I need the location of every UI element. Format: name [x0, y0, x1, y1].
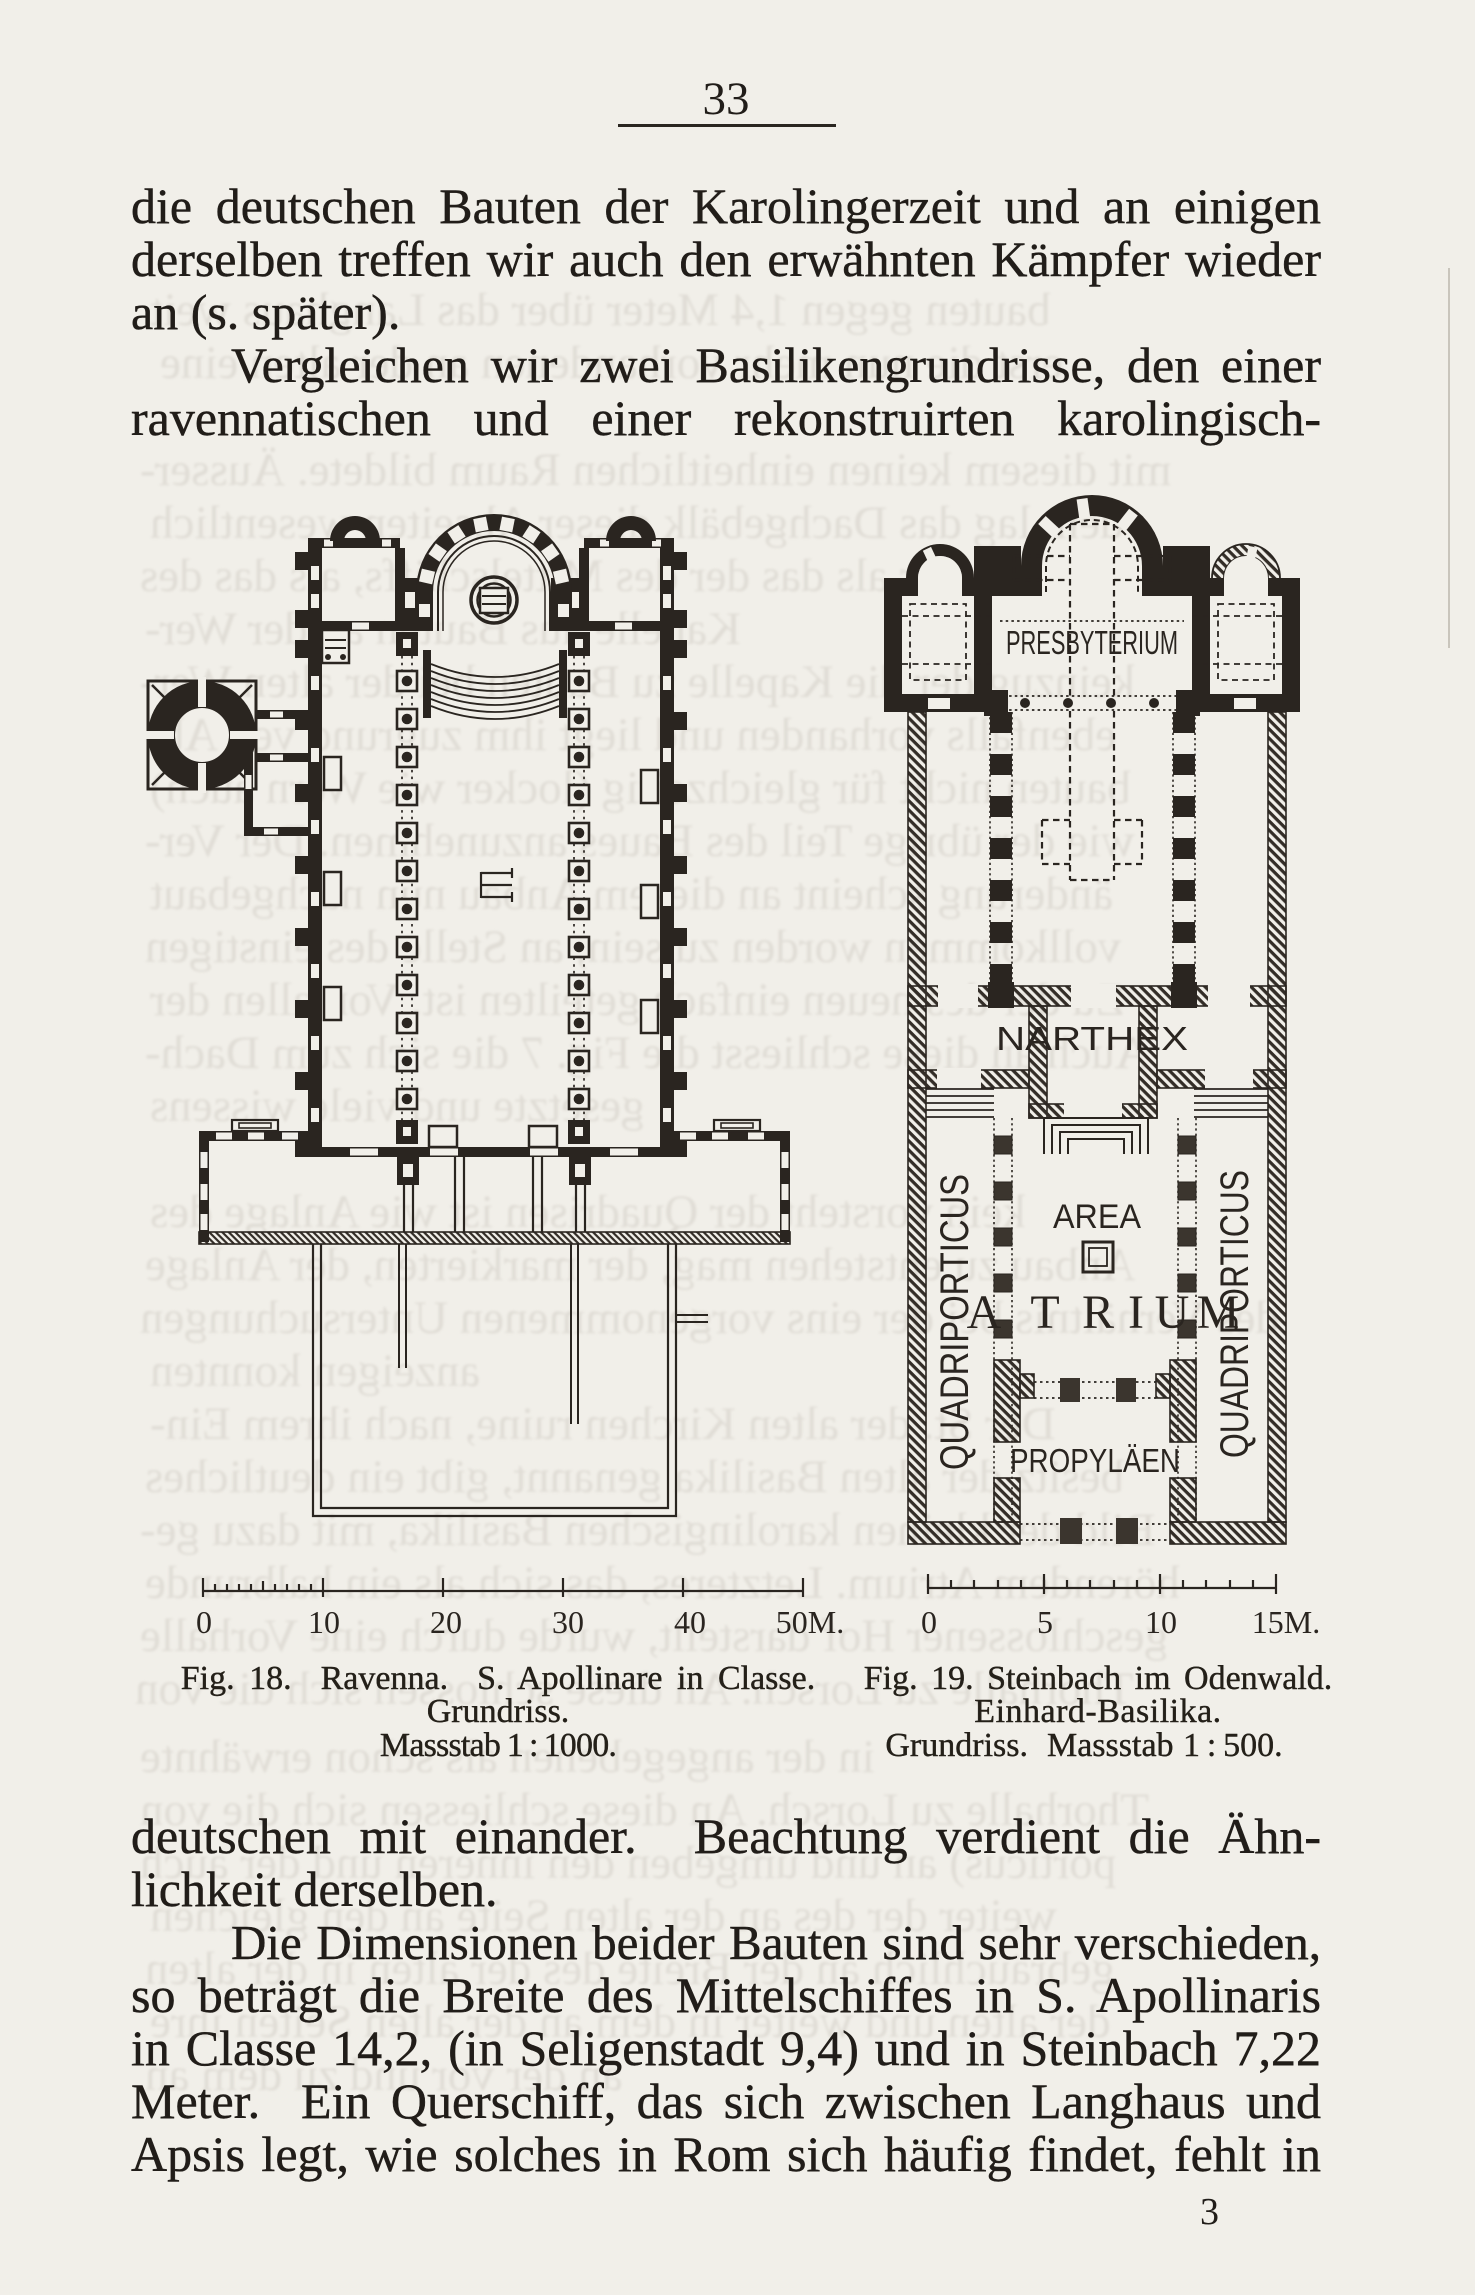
svg-text:0: 0 — [196, 1604, 212, 1640]
svg-text:R: R — [1082, 1286, 1114, 1339]
svg-text:20: 20 — [430, 1604, 462, 1640]
svg-text:I: I — [1128, 1286, 1144, 1339]
svg-text:QUADRIPORTICUS: QUADRIPORTICUS — [933, 1174, 977, 1470]
svg-text:T: T — [1030, 1286, 1059, 1339]
svg-text:10: 10 — [308, 1604, 340, 1640]
svg-text:5: 5 — [1037, 1604, 1053, 1640]
svg-text:NARTHEX: NARTHEX — [996, 1020, 1188, 1057]
svg-text:QUADRIPORTICUS: QUADRIPORTICUS — [1213, 1170, 1257, 1458]
svg-text:U: U — [1155, 1286, 1190, 1339]
svg-text:30: 30 — [552, 1604, 584, 1640]
svg-text:AREA: AREA — [1053, 1198, 1141, 1236]
svg-text:10: 10 — [1145, 1604, 1177, 1640]
svg-text:PRESBYTERIUM: PRESBYTERIUM — [1006, 624, 1178, 661]
svg-text:15M.: 15M. — [1252, 1604, 1320, 1640]
svg-text:50M.: 50M. — [776, 1604, 844, 1640]
svg-text:PROPYLÄEN: PROPYLÄEN — [1010, 1442, 1180, 1479]
svg-text:40: 40 — [674, 1604, 706, 1640]
svg-text:0: 0 — [921, 1604, 937, 1640]
